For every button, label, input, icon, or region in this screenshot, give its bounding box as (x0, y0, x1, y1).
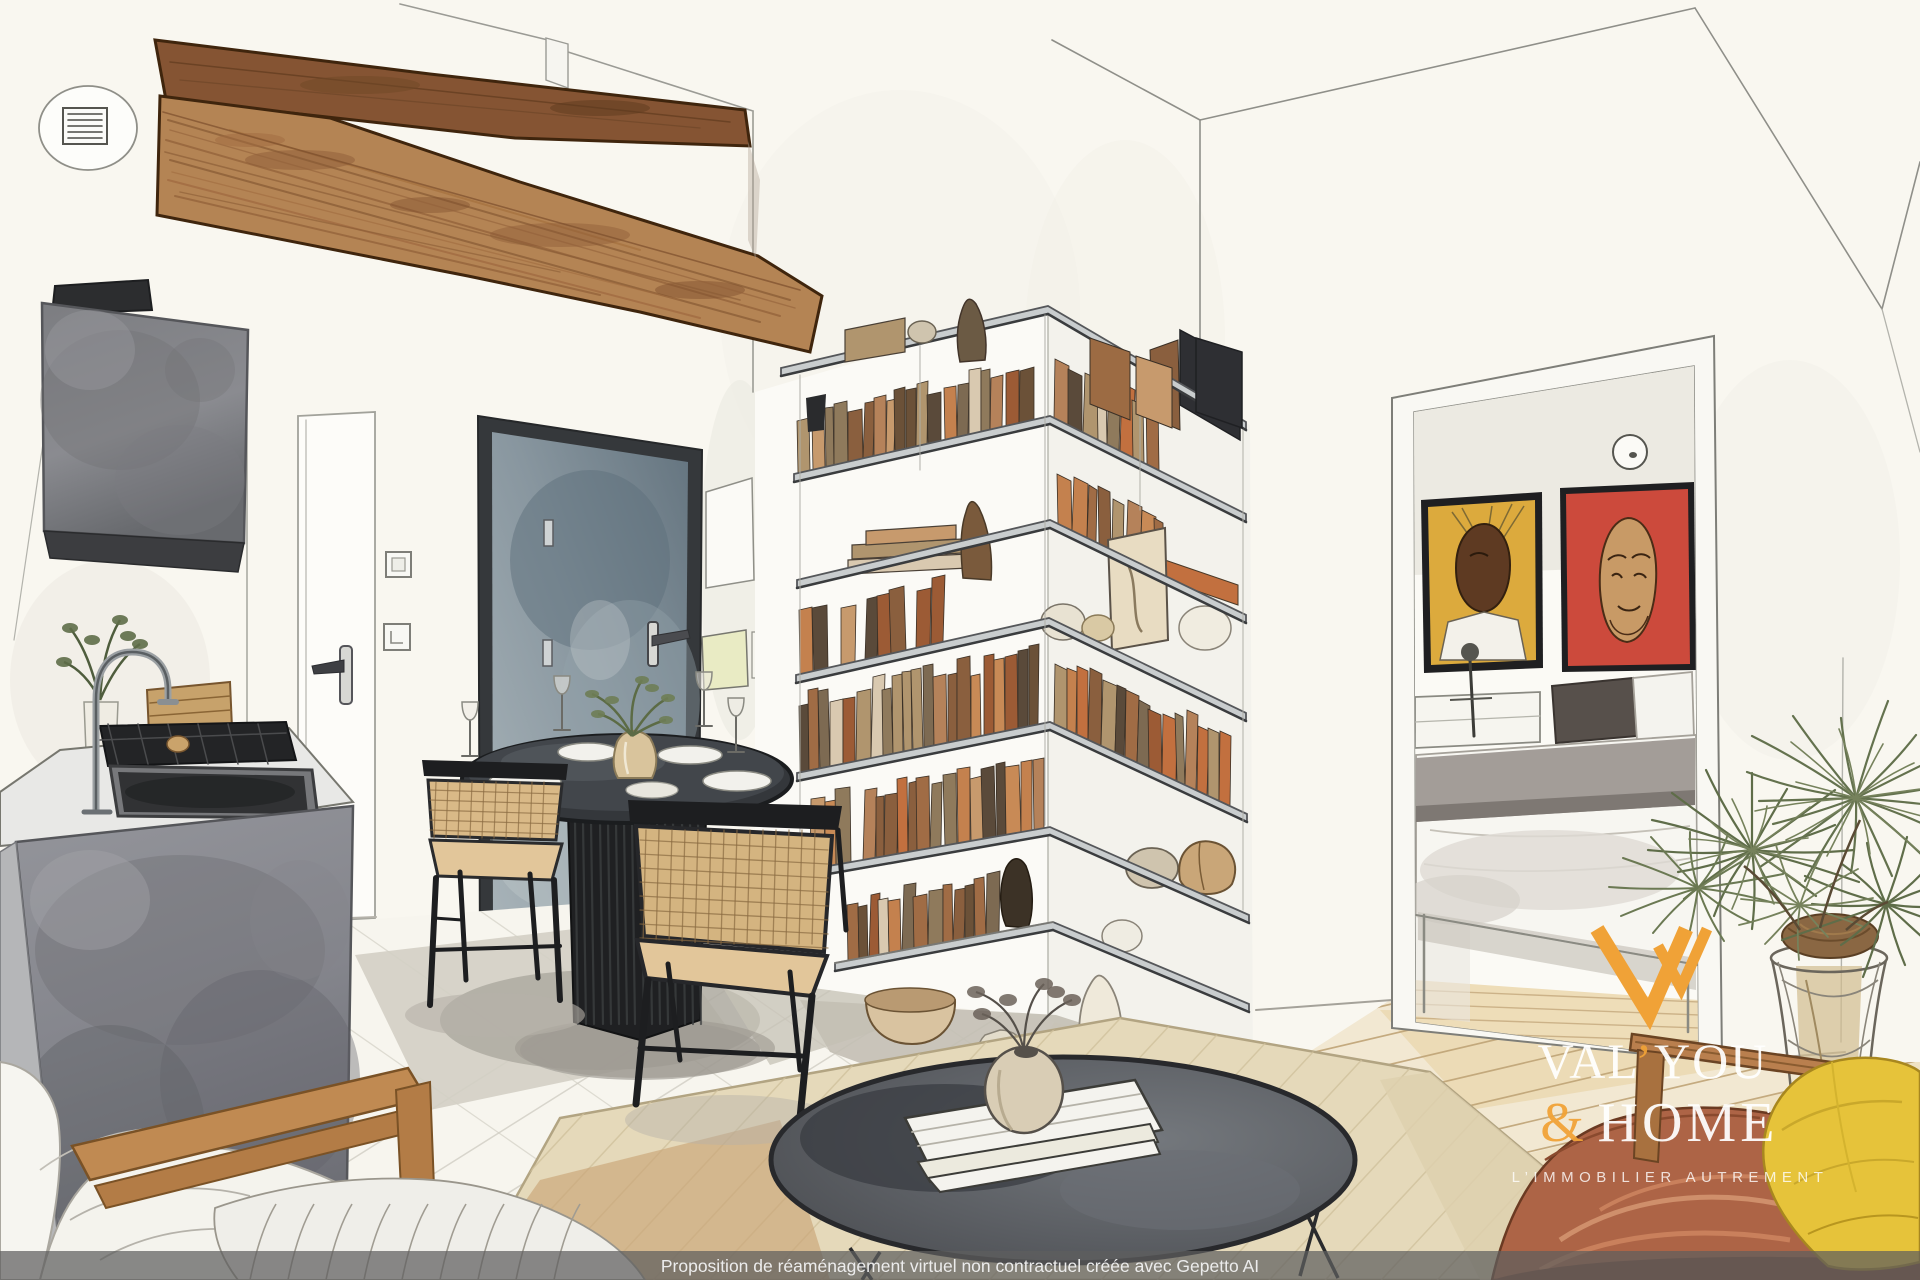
svg-text:Proposition de réaménagement v: Proposition de réaménagement virtuel non… (661, 1256, 1259, 1276)
svg-text:HOME: HOME (1598, 1092, 1779, 1154)
svg-text:&: & (1540, 1092, 1584, 1154)
svg-text:VAL’YOU: VAL’YOU (1538, 1033, 1769, 1089)
svg-text:L’IMMOBILIER AUTREMENT: L’IMMOBILIER AUTREMENT (1512, 1169, 1829, 1186)
